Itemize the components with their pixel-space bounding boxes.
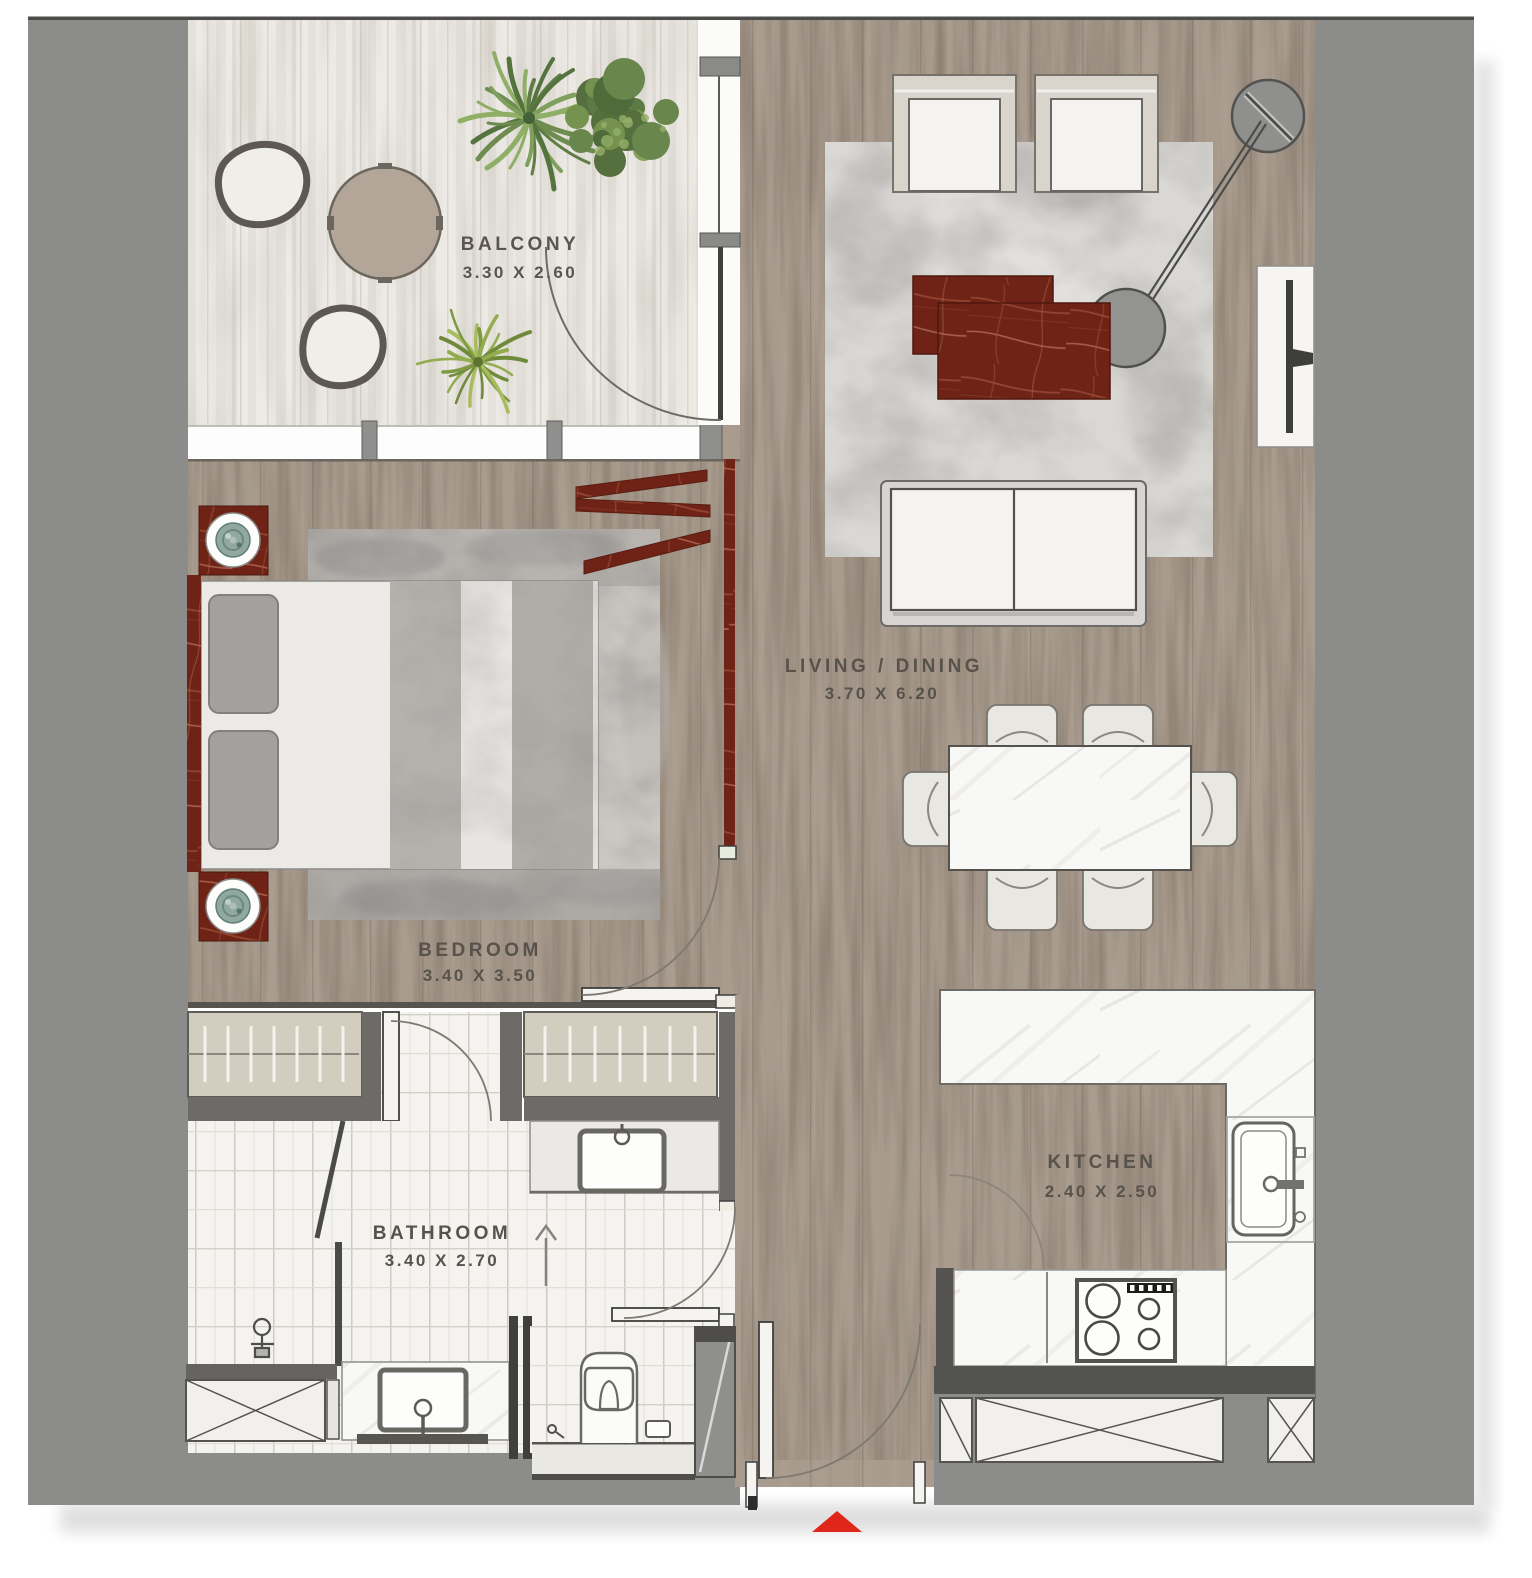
svg-text:3.40 X 3.50: 3.40 X 3.50 <box>423 966 537 985</box>
svg-text:BATHROOM: BATHROOM <box>373 1223 511 1244</box>
svg-text:BALCONY: BALCONY <box>461 234 579 255</box>
svg-text:3.30 X 2.60: 3.30 X 2.60 <box>463 263 577 282</box>
svg-text:KITCHEN: KITCHEN <box>1048 1152 1157 1173</box>
svg-text:3.70 X 6.20: 3.70 X 6.20 <box>825 684 939 703</box>
svg-text:2.40 X 2.50: 2.40 X 2.50 <box>1045 1182 1159 1201</box>
svg-text:LIVING / DINING: LIVING / DINING <box>785 656 983 677</box>
svg-text:BEDROOM: BEDROOM <box>418 940 542 961</box>
svg-text:3.40 X 2.70: 3.40 X 2.70 <box>385 1251 499 1270</box>
